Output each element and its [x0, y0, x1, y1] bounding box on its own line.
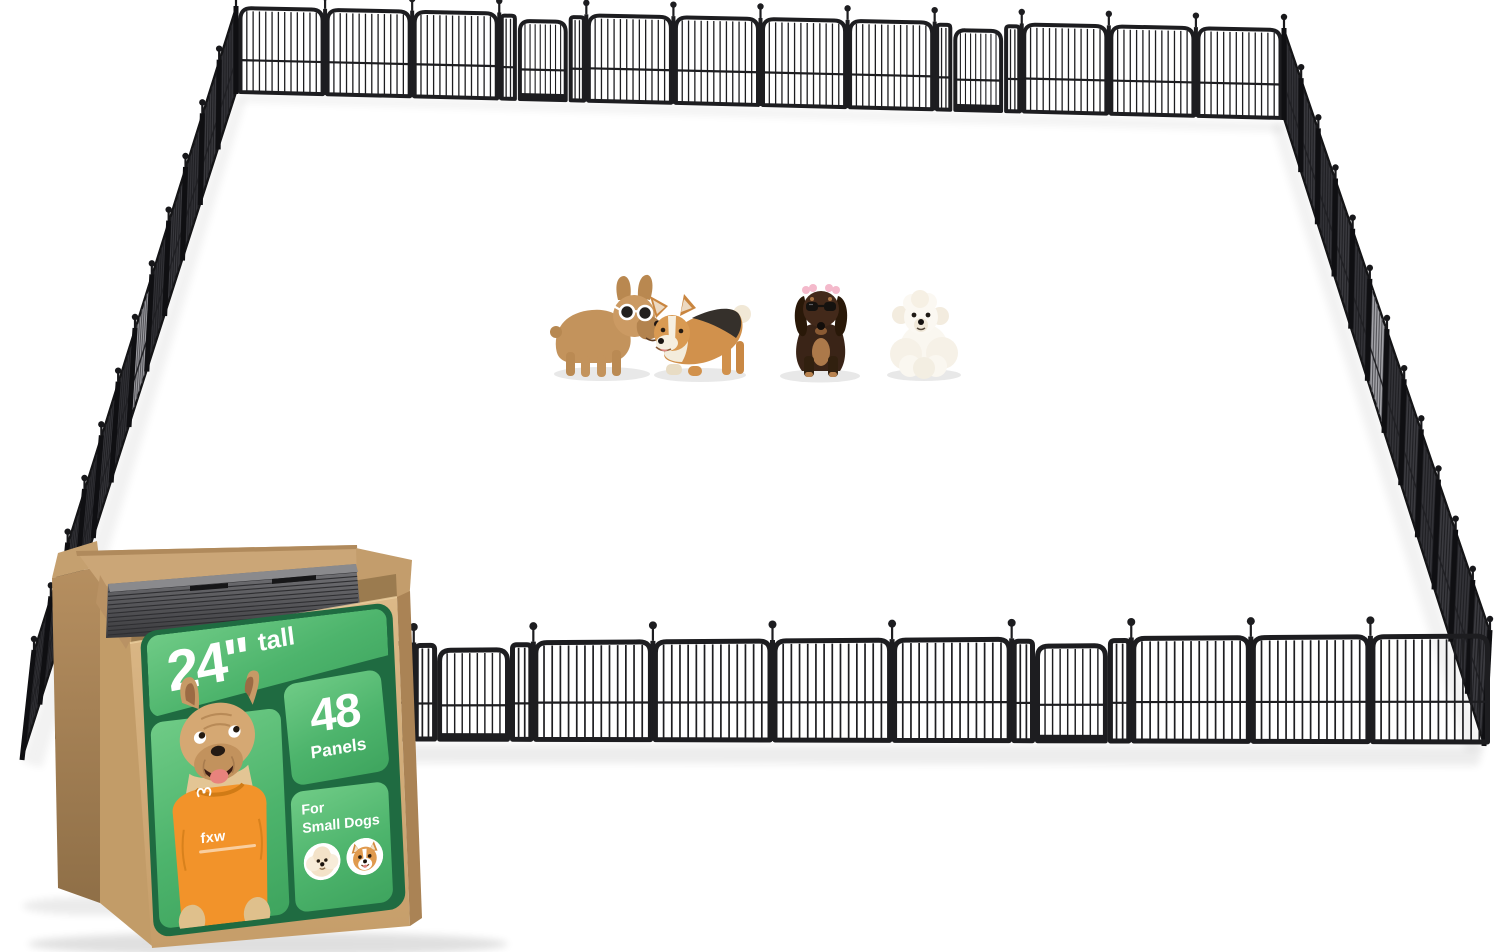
bulldog-photo-section: fxw: [150, 708, 289, 930]
box-label: 24" tall: [140, 602, 406, 938]
bichon-image: [887, 290, 961, 381]
pomeranian-photo: [303, 841, 341, 882]
corgi-photo: [346, 836, 384, 877]
audience-section: For Small Dogs: [290, 781, 393, 913]
bulldog-photo: [146, 665, 292, 932]
french-bulldog-image: [550, 275, 662, 381]
height-suffix: tall: [256, 622, 296, 658]
corgi-image: [650, 294, 751, 382]
dachshund-image: [780, 284, 860, 383]
panel-count-section: 48 Panels: [283, 669, 390, 787]
product-image: 24" tall: [0, 0, 1500, 952]
dogs-group: [550, 275, 961, 383]
brand-name: fxw: [200, 827, 226, 846]
brand-logo: fxw: [200, 827, 226, 846]
brand-logo-icon: [196, 786, 212, 799]
